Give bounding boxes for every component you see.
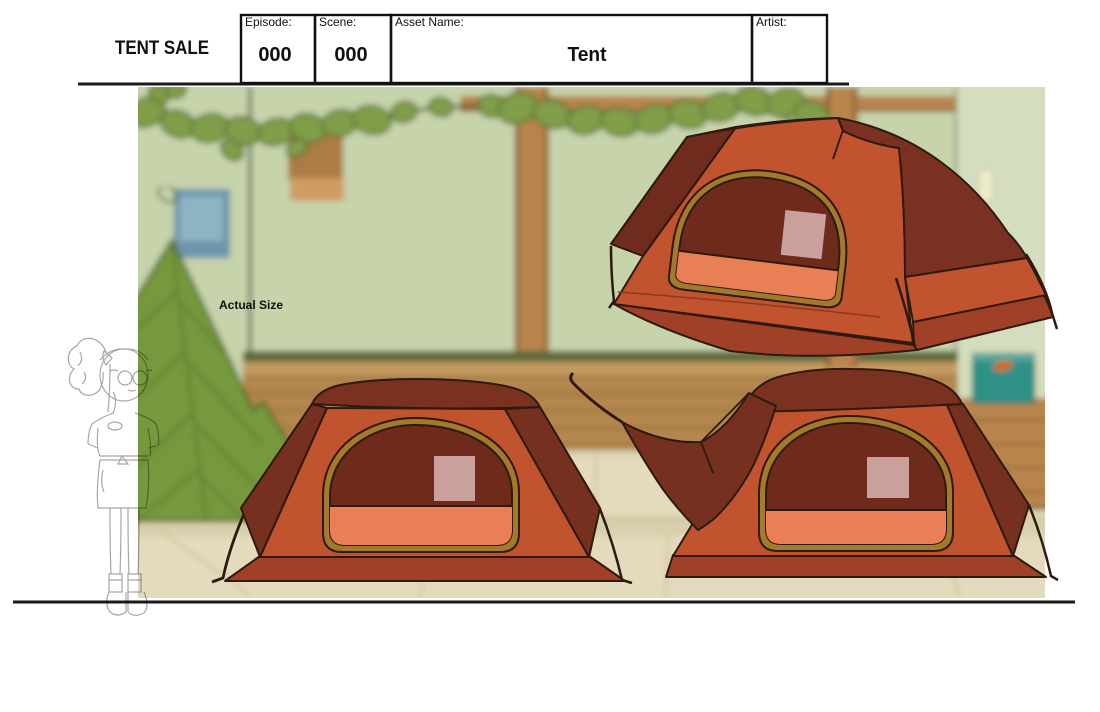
svg-text:Asset Name:: Asset Name:	[395, 15, 464, 29]
svg-text:000: 000	[258, 44, 291, 66]
svg-text:TENT SALE: TENT SALE	[115, 37, 209, 59]
svg-text:Episode:: Episode:	[245, 15, 292, 29]
svg-text:000: 000	[334, 44, 367, 66]
svg-text:Tent: Tent	[568, 44, 607, 66]
svg-text:Scene:: Scene:	[319, 15, 356, 29]
svg-text:Actual Size: Actual Size	[219, 298, 283, 312]
svg-text:Artist:: Artist:	[756, 15, 787, 29]
